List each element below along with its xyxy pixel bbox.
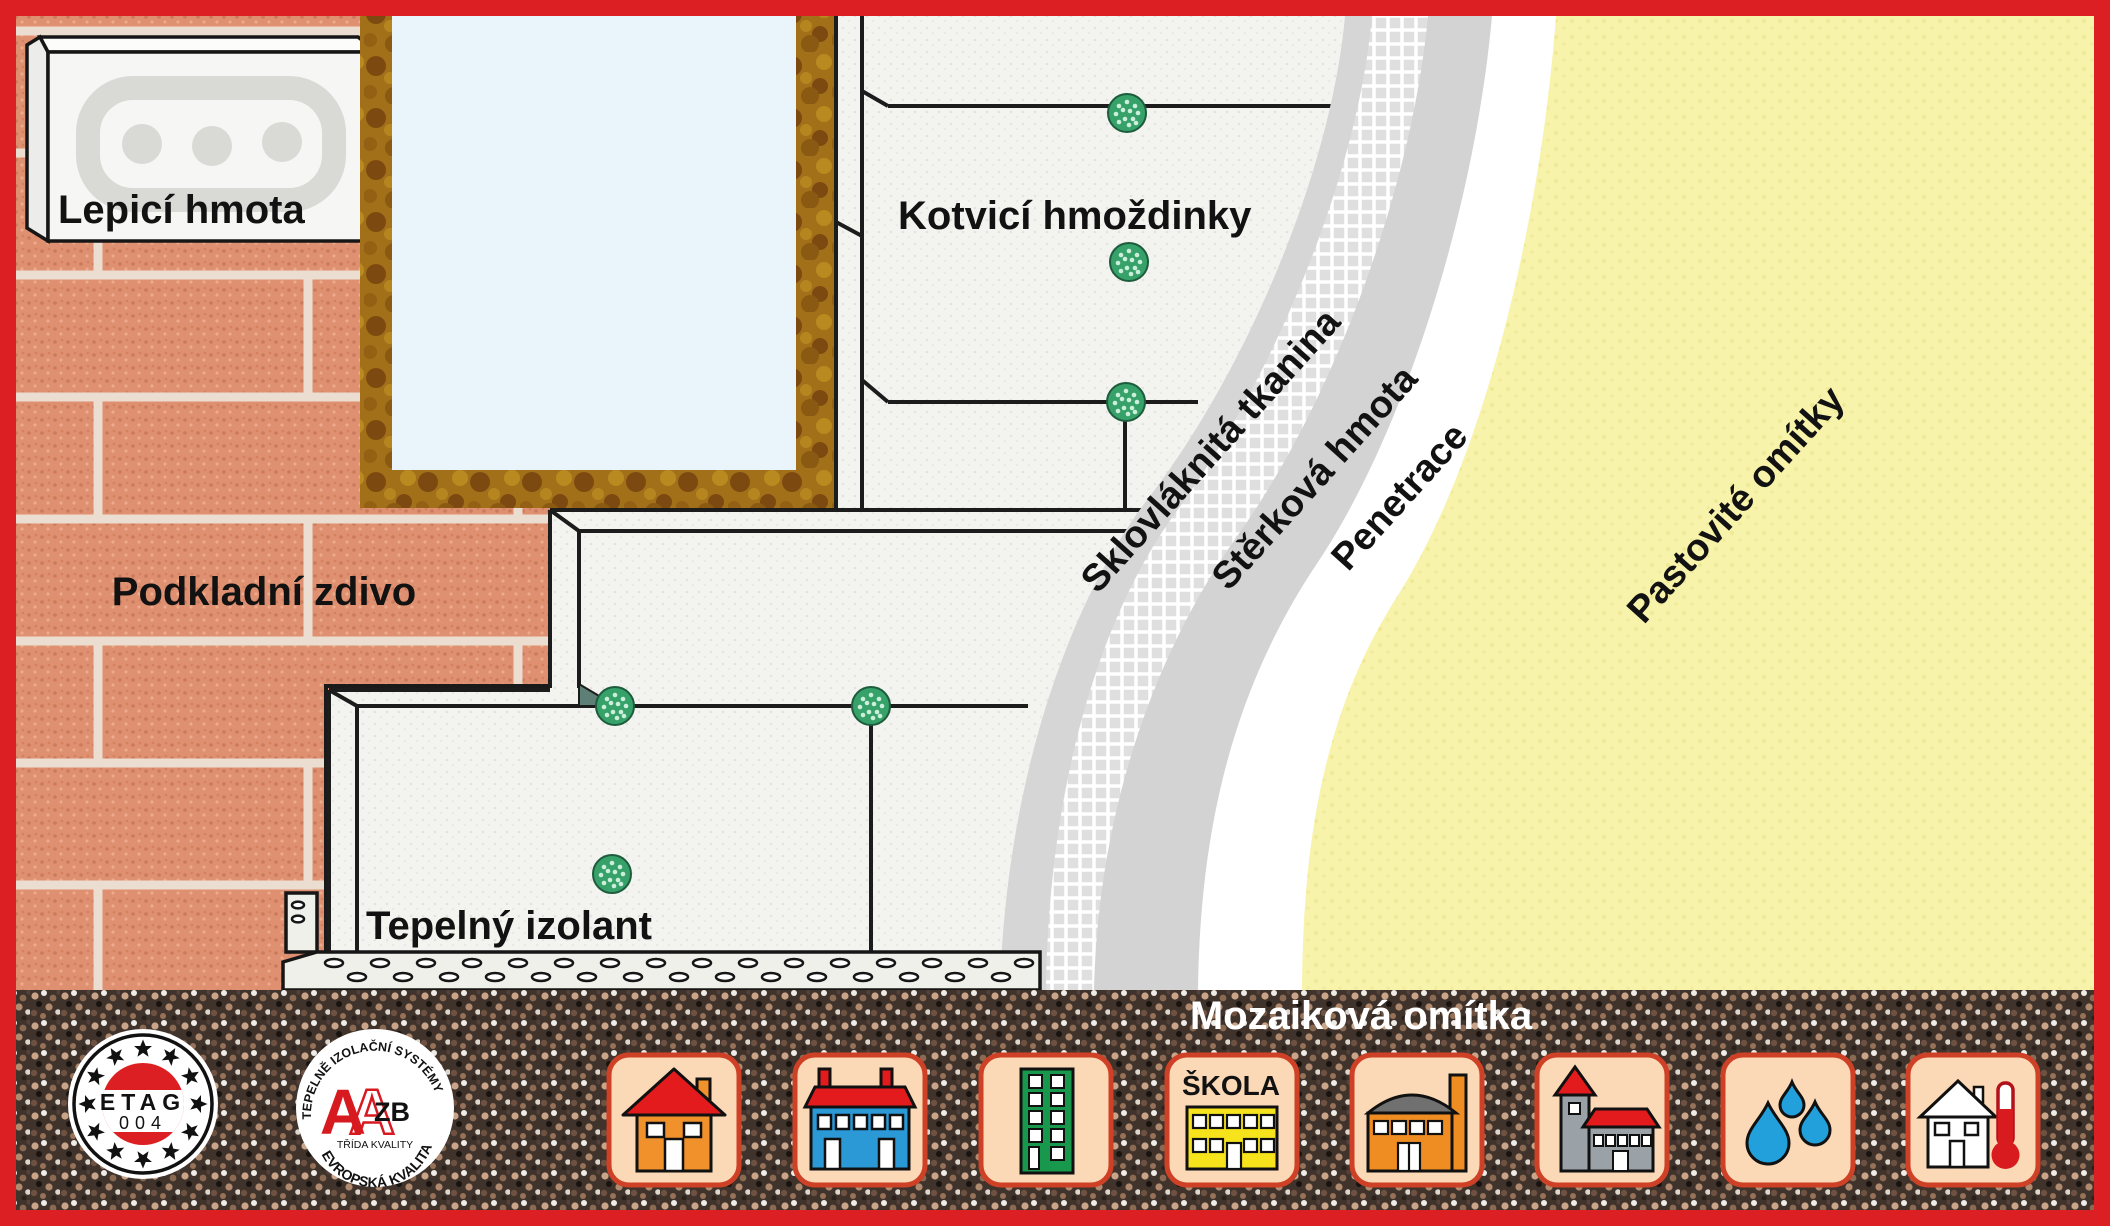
label-base-masonry: Podkladní zdivo xyxy=(112,572,416,612)
window-glass xyxy=(392,16,796,470)
window xyxy=(360,16,836,508)
etics-diagram: ETAG 004 TEPELNĚ IZOLAČNÍ SYSTÉMY EVROPS… xyxy=(0,0,2110,1226)
azb-sub-text: TŘÍDA KVALITY xyxy=(337,1138,413,1151)
label-thermal-insulation: Tepelný izolant xyxy=(366,906,652,946)
label-mosaic-plaster: Mozaiková omítka xyxy=(1190,996,1532,1036)
azb-zb-text: ZB xyxy=(374,1097,410,1127)
label-anchor-dowels: Kotvicí hmoždinky xyxy=(898,196,1251,236)
school-icon xyxy=(1187,1107,1277,1169)
etag-number: 004 xyxy=(119,1113,167,1133)
label-adhesive: Lepicí hmota xyxy=(58,190,305,230)
high-rise-icon xyxy=(1021,1069,1073,1173)
etag-004-logo: ETAG 004 xyxy=(68,1029,218,1179)
etag-text: ETAG xyxy=(100,1089,186,1115)
label-school: ŠKOLA xyxy=(1182,1072,1280,1100)
